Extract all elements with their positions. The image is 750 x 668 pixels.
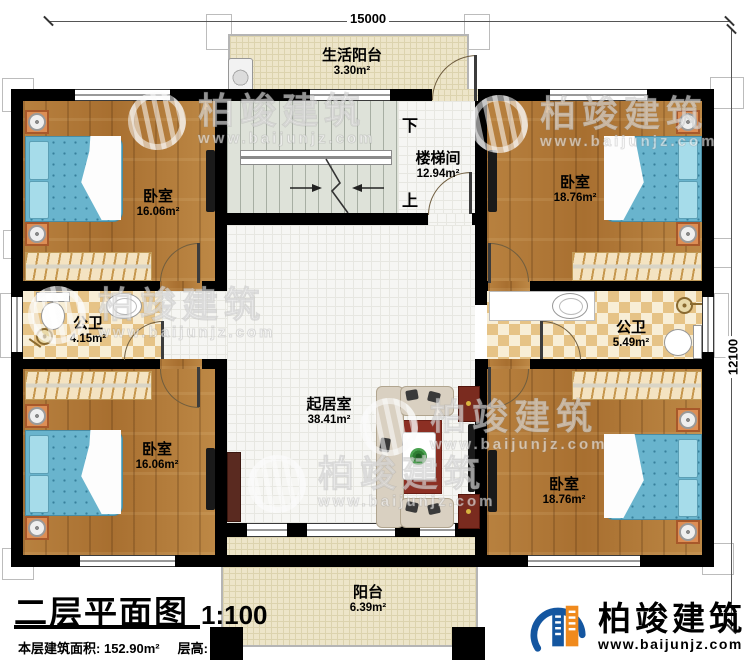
door-leaf [197,367,200,407]
floor-area-info: 本层建筑面积: 152.90m² [18,638,160,657]
room-label-bedroom-tl: 卧室 16.06m² [137,188,180,220]
dim-extension-box [710,77,744,109]
lamp-icon [28,407,46,425]
room-label-living: 起居室 38.41m² [306,396,351,428]
cushion-icon [405,501,419,513]
floor-plan: 15000 12100 [0,0,750,668]
tv-icon [488,150,497,212]
window [75,89,170,101]
wall [475,89,487,305]
window [80,555,175,567]
window [310,89,390,101]
door-opening [160,359,202,369]
wardrobe-icon [572,252,702,281]
lamp-icon [679,411,697,429]
pillow-icon [29,435,49,474]
tv-icon [468,424,475,492]
toilet-icon [41,302,65,330]
plant-icon [410,448,427,465]
tv-cabinet-icon [458,494,480,529]
cushion-icon [379,437,391,452]
nightstand-icon [25,516,49,540]
lamp-icon [679,113,697,131]
wall [215,89,227,291]
room-label-bath-right: 公卫 5.49m² [613,319,649,351]
tv-icon [206,150,215,212]
nightstand-icon [676,110,700,134]
pillow-icon [29,475,49,513]
pillow-icon [678,141,698,180]
wardrobe-icon [25,371,152,400]
window [550,89,647,101]
room-label-bedroom-br: 卧室 18.76m² [543,476,586,508]
room-label-stairwell: 楼梯间 12.94m² [415,150,460,182]
tv-icon [206,448,215,510]
shower-arm [690,303,702,305]
balcony-column [452,627,485,660]
brand-name: 柏竣建筑 [598,602,746,637]
sink-basin [559,298,583,315]
toilet-tank-icon [693,325,702,359]
title-info: 本层建筑面积: 152.90m² 层高: 3.3m [18,638,241,657]
stair-direction-arrows [282,155,392,215]
door-leaf [161,321,164,359]
pillow-icon [678,439,698,478]
lamp-icon [679,523,697,541]
pillow-icon [678,181,698,219]
room-label-life-balcony: 生活阳台 3.30m² [322,47,382,79]
shower-icon [676,297,693,314]
console-icon [227,452,241,522]
cushion-icon [405,389,419,401]
lamp-icon [28,519,46,537]
window [702,297,714,352]
lamp-icon [679,225,697,243]
nightstand-icon [25,222,49,246]
hallway-floor [162,291,227,359]
nightstand-icon [676,520,700,544]
wardrobe-icon [572,371,702,400]
window [247,523,287,537]
shower-icon [36,328,53,345]
nightstand-icon [676,222,700,246]
window [11,297,23,352]
floor-height-info: 层高: 3.3m [178,638,242,657]
stair-up-label: 上 [402,187,418,211]
door-leaf [488,367,491,407]
plan-title: 二层平面图 [14,586,189,634]
door-leaf [488,243,491,283]
wardrobe-icon [25,252,152,281]
dimension-line-right [731,30,732,630]
nightstand-icon [676,408,700,432]
door-leaf [474,55,477,101]
stair-down-label: 下 [402,112,418,136]
wall [215,359,227,567]
window [528,555,640,567]
dimension-top-value: 15000 [347,11,389,26]
tv-cabinet-icon [458,386,480,422]
pillow-icon [29,141,49,180]
door-leaf [197,243,200,283]
plan-scale: 1:100 [201,600,268,631]
title-block: 二层平面图 1:100 [14,586,268,634]
toilet-tank-icon [36,292,70,302]
room-label-balcony: 阳台 6.39m² [350,584,386,616]
nightstand-icon [25,110,49,134]
pillow-icon [29,181,49,219]
pillow-icon [678,479,698,517]
room-label-bedroom-tr: 卧室 18.76m² [554,174,597,206]
nightstand-icon [25,404,49,428]
brand-logo-icon [530,598,588,656]
brand-url: www.baijunjz.com [598,636,746,652]
door-opening [160,281,202,291]
sink-basin [113,298,137,315]
toilet-icon [664,329,692,356]
brand-block: 柏竣建筑 www.baijunjz.com [530,598,746,656]
door-leaf [540,321,543,359]
room-label-bedroom-bl: 卧室 16.06m² [136,441,179,473]
door-opening [488,281,530,291]
lamp-icon [28,225,46,243]
dimension-right-value: 12100 [726,336,741,378]
door-opening [488,359,530,369]
tv-icon [488,450,497,512]
lamp-icon [28,113,46,131]
door-leaf [469,172,472,214]
room-label-bath-left: 公卫 4.15m² [70,315,106,347]
